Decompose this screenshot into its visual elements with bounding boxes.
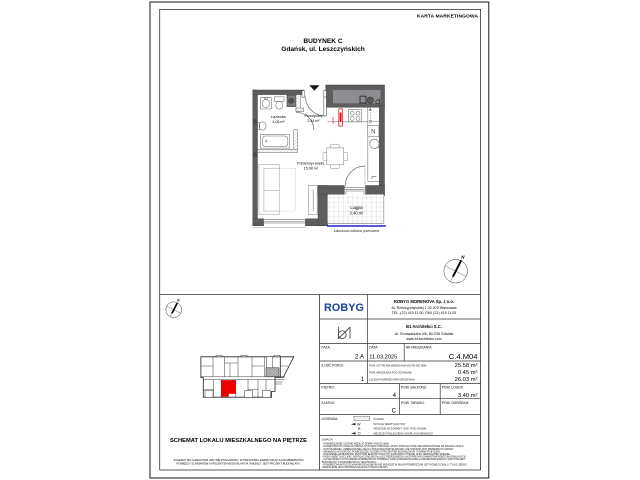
svg-text:2.A: 2.A [355, 355, 364, 361]
svg-text:3.40 m²: 3.40 m² [350, 211, 365, 216]
svg-text:NR MIESZKANIA:: NR MIESZKANIA: [406, 346, 433, 350]
svg-text:O: O [358, 432, 361, 436]
svg-text:SCHEMAT LOKALU MIESZKALNEGO NA: SCHEMAT LOKALU MIESZKALNEGO NA PIĘTRZE [170, 438, 307, 444]
svg-text:POW. OGRÓDKA:: POW. OGRÓDKA: [442, 400, 469, 405]
svg-text:DATA:: DATA: [369, 346, 378, 350]
svg-text:Al. Rzeczypospolitej 1 02-972: Al. Rzeczypospolitej 1 02-972 Warszawa [392, 306, 457, 310]
svg-text:FAZA:: FAZA: [322, 346, 331, 350]
svg-text:WYCIĄG WENTYLACYJNY: WYCIĄG WENTYLACYJNY [374, 422, 407, 426]
svg-text:UWAGA:: UWAGA: [322, 438, 333, 442]
svg-text:Łazienka: Łazienka [271, 115, 285, 119]
svg-text:MIEJSCE PODŁĄCZENIA OKAPU KUCH: MIEJSCE PODŁĄCZENIA OKAPU KUCHENNEGO [374, 431, 433, 435]
svg-text:0.45 m²: 0.45 m² [458, 370, 478, 376]
svg-text:B1 Architekci S.C.: B1 Architekci S.C. [406, 324, 442, 329]
svg-text:POW. BALKONU:: POW. BALKONU: [401, 386, 427, 390]
svg-text:11.03.2025: 11.03.2025 [369, 355, 397, 361]
svg-text:Loggia: Loggia [350, 205, 363, 210]
svg-text:POW. UŻYTKOWA MIESZKANIA WG PN: POW. UŻYTKOWA MIESZKANIA WG PN-ISO 9836 [369, 364, 427, 367]
svg-text:PIĘTRO:: PIĘTRO: [322, 386, 335, 390]
svg-text:4.06 m²: 4.06 m² [272, 120, 285, 124]
svg-text:KLATKA:: KLATKA: [322, 401, 335, 405]
svg-text:Al. Grunwaldzka 4/6, 80-236 Gd: Al. Grunwaldzka 4/6, 80-236 Gdańsk [395, 332, 454, 336]
svg-text:zw/cw: zw/cw [331, 117, 335, 124]
svg-text:OKREŚLENIE JEST OBOWIĄZUJĄCE D: OKREŚLENIE JEST OBOWIĄZUJĄCE DLA STRON U… [322, 466, 389, 469]
svg-text:ILOŚĆ POKOI:: ILOŚĆ POKOI: [322, 363, 344, 368]
svg-text:Gdańsk, ul. Leszczyńskich: Gdańsk, ul. Leszczyńskich [281, 46, 365, 53]
svg-text:C.4.M04: C.4.M04 [449, 352, 478, 361]
svg-text:26.03 m²: 26.03 m² [455, 377, 478, 383]
svg-text:15.08 m²: 15.08 m² [304, 167, 319, 171]
svg-text:2.44 m²: 2.44 m² [307, 119, 320, 123]
svg-text:zabudowa szklana przesuwna: zabudowa szklana przesuwna [334, 229, 379, 233]
svg-text:KARTA MARKETINGOWA: KARTA MARKETINGOWA [417, 14, 478, 20]
svg-text:N: N [371, 130, 375, 136]
svg-text:POW. MIESZKANIA POD ŚCIANKAMI: POW. MIESZKANIA POD ŚCIANKAMI [369, 371, 412, 374]
svg-text:TEL. (22) 419 11 00, FAX (22): TEL. (22) 419 11 00, FAX (22) 419 11 03 [392, 311, 457, 315]
svg-text:POW. LOGGII:: POW. LOGGII: [442, 386, 464, 390]
svg-text:ŁĄCZNA POWIERZCHNIA MIESZKANIA: ŁĄCZNA POWIERZCHNIA MIESZKANIA: [369, 378, 416, 381]
svg-text:25.58 m²: 25.58 m² [455, 363, 478, 369]
svg-text:ROBYG MORENOVA Sp. z o.o.: ROBYG MORENOVA Sp. z o.o. [394, 299, 454, 304]
svg-text:3.40 m²: 3.40 m² [458, 393, 478, 399]
svg-text:LEGENDA:: LEGENDA: [322, 417, 339, 421]
svg-text:ROBYG: ROBYG [324, 302, 364, 314]
svg-text:P.dzienny+aneks: P.dzienny+aneks [297, 162, 324, 166]
svg-text:C: C [392, 408, 397, 414]
svg-text:Przedpokój: Przedpokój [305, 114, 323, 118]
svg-text:BUDYNEK C: BUDYNEK C [303, 38, 342, 45]
svg-text:GRZEJNIK RYSOWANY: NAD, POD OK: GRZEJNIK RYSOWANY: NAD, POD OKNEM [374, 427, 427, 431]
svg-text:www.b1architekci.com: www.b1architekci.com [406, 337, 442, 341]
svg-text:POW. TARASU:: POW. TARASU: [401, 401, 425, 405]
